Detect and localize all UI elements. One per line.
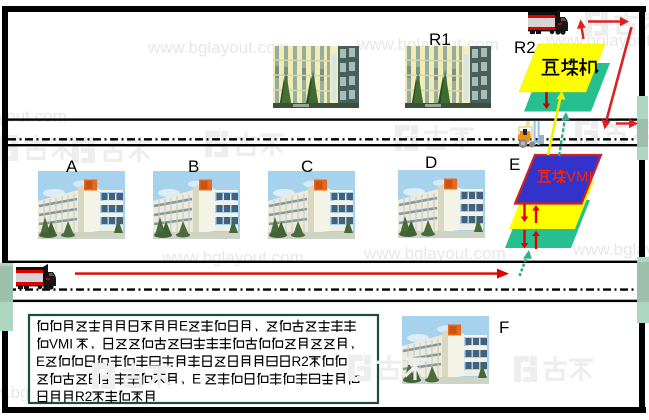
- svg-text:B: B: [188, 157, 199, 176]
- svg-text:R1: R1: [429, 30, 451, 49]
- svg-text:F: F: [499, 318, 509, 337]
- svg-text:www.bglayout.com: www.bglayout.com: [0, 107, 67, 126]
- svg-text:R2: R2: [514, 38, 536, 57]
- svg-text:E: E: [509, 155, 520, 174]
- svg-text:D: D: [425, 153, 437, 172]
- svg-text:www.bglayout.com: www.bglayout.com: [572, 240, 649, 259]
- svg-text:E: E: [36, 354, 45, 369]
- svg-text:A: A: [66, 157, 78, 176]
- svg-text:www.bglayout.com: www.bglayout.com: [363, 244, 506, 263]
- svg-text:VMI: VMI: [49, 336, 73, 351]
- svg-text:R2: R2: [292, 354, 309, 369]
- svg-text:E: E: [179, 319, 188, 334]
- svg-text:R2: R2: [75, 389, 92, 404]
- svg-text:C: C: [301, 157, 313, 176]
- svg-text:E: E: [192, 372, 201, 387]
- svg-text:www.bglayout.com: www.bglayout.com: [147, 38, 290, 57]
- svg-text:VMI: VMI: [566, 168, 593, 185]
- svg-text:www.bglayout.com: www.bglayout.com: [161, 248, 304, 267]
